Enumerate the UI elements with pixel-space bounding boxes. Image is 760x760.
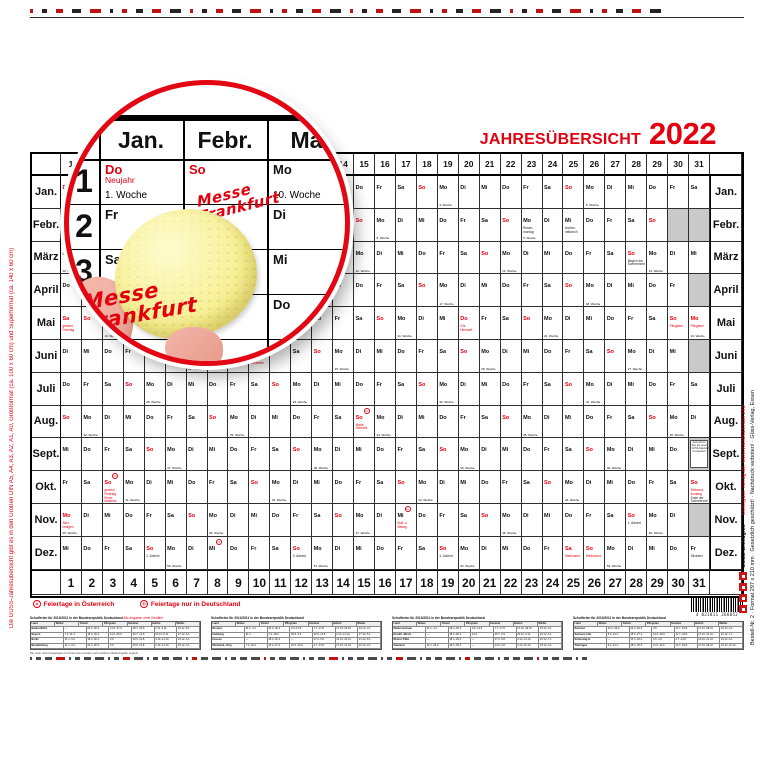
day-cell: Mi bbox=[417, 406, 438, 439]
day-cell: Do bbox=[480, 471, 501, 504]
day-cell: Mo50. Woche bbox=[166, 537, 187, 570]
day-number-footer: 30 bbox=[668, 570, 689, 595]
day-cell: Sa bbox=[438, 340, 459, 373]
day-cell: Fr bbox=[166, 406, 187, 439]
day-cell: Di bbox=[417, 307, 438, 340]
magnifier-top-border bbox=[83, 115, 345, 121]
day-cell: Mo21. Woche bbox=[396, 307, 417, 340]
day-cell: So bbox=[375, 307, 396, 340]
day-cell: Mi bbox=[375, 340, 396, 373]
week-number: 5. Woche bbox=[586, 203, 599, 207]
day-cell: Di bbox=[291, 471, 312, 504]
month-label-right: Juli bbox=[710, 373, 742, 406]
day-cell: Mo39. Woche bbox=[459, 438, 480, 471]
day-number-header: 22 bbox=[501, 154, 522, 176]
day-cell: Mi bbox=[354, 537, 375, 570]
day-cell: Do bbox=[438, 406, 459, 439]
day-number-footer: 2 bbox=[82, 570, 103, 595]
day-cell: Sa bbox=[626, 406, 647, 439]
day-cell: Do bbox=[668, 537, 689, 570]
day-cell: So bbox=[563, 274, 584, 307]
day-cell: Di bbox=[647, 340, 668, 373]
day-cell: Fr bbox=[145, 504, 166, 537]
day-cell: Sa bbox=[187, 406, 208, 439]
month-label-left: Jan. bbox=[32, 176, 61, 209]
day-cell: MoAller-heiligen45. Woche bbox=[61, 504, 82, 537]
week-number: 21. Woche bbox=[397, 334, 411, 338]
day-cell: Di bbox=[333, 438, 354, 471]
week-number: 13. Woche bbox=[502, 269, 516, 273]
right-margin-order-text: Bestell-Nr. 2 · Format 297 x 210 mm · Ge… bbox=[750, 300, 756, 645]
day-cell: Sa bbox=[228, 471, 249, 504]
day-cell: Di bbox=[480, 438, 501, 471]
day-cell: Di bbox=[459, 373, 480, 406]
month-label-right: Dez. bbox=[710, 537, 742, 570]
day-cell: Do bbox=[375, 537, 396, 570]
day-cell: SoDgesetzl.FeiertagErnte-dankfest bbox=[103, 471, 124, 504]
day-cell: Sa bbox=[82, 471, 103, 504]
day-cell: Mi bbox=[668, 340, 689, 373]
day-cell: Di bbox=[249, 406, 270, 439]
day-cell: Do bbox=[647, 176, 668, 209]
day-cell: Fr bbox=[354, 471, 375, 504]
day-cell: SoWeihnacht. bbox=[584, 537, 605, 570]
week-number: 34. Woche bbox=[377, 433, 391, 437]
week-number: 24. Woche bbox=[188, 367, 202, 371]
day-cell: Fr bbox=[522, 274, 543, 307]
day-number-footer: 5 bbox=[145, 570, 166, 595]
month-label-left: März bbox=[32, 242, 61, 275]
barcode: 4 021811 266052 bbox=[688, 598, 746, 617]
day-cell: Do bbox=[584, 209, 605, 242]
day-cell: Sa bbox=[668, 471, 689, 504]
day-cell: Mi bbox=[187, 373, 208, 406]
week-number: 17. Woche bbox=[439, 302, 453, 306]
month-label-left: Mai bbox=[32, 307, 61, 340]
day-cell: Mi bbox=[689, 242, 710, 275]
day-cell: Mi bbox=[647, 438, 668, 471]
day-cell bbox=[689, 504, 710, 537]
week-number: 44. Woche bbox=[565, 498, 579, 502]
week-number: 45. Woche bbox=[63, 531, 77, 535]
day-cell: Fr bbox=[563, 340, 584, 373]
day-cell: Fr bbox=[249, 537, 270, 570]
week-number: 14. Woche bbox=[649, 269, 663, 273]
day-cell: Sa bbox=[605, 504, 626, 537]
day-cell: Sa bbox=[312, 504, 333, 537]
day-cell: Do bbox=[647, 274, 668, 307]
day-cell: SoReforma-tionstagEnde derSommerzeit bbox=[689, 471, 710, 504]
day-cell: Do bbox=[270, 504, 291, 537]
day-cell: Mi bbox=[61, 537, 82, 570]
week-number: 50. Woche bbox=[167, 564, 181, 568]
day-cell: So bbox=[333, 504, 354, 537]
month-label-right: Okt. bbox=[710, 471, 742, 504]
day-cell: Mo22. Woche bbox=[543, 307, 564, 340]
week-number: 42. Woche bbox=[272, 498, 286, 502]
school-holiday-table: Schulferien für 2010/2011 in der Bundesr… bbox=[573, 616, 744, 655]
week-number: 23. Woche bbox=[691, 334, 705, 338]
left-margin-text: Die GÜSS-Jahresübersicht gibt es in den … bbox=[9, 150, 15, 628]
day-cell: Mo12. Woche bbox=[354, 242, 375, 275]
day-cell: Mo18. Woche bbox=[584, 274, 605, 307]
day-cell: So bbox=[417, 274, 438, 307]
day-number-header: 28 bbox=[626, 154, 647, 176]
day-cell: Mi bbox=[438, 307, 459, 340]
day-cell: So bbox=[145, 438, 166, 471]
holiday-region-marker: A bbox=[364, 408, 370, 414]
day-cell: Mo28. Woche bbox=[145, 373, 166, 406]
day-cell: Mo4. Woche bbox=[438, 176, 459, 209]
calendar-sheet: JAHRESÜBERSICHT 2022 1234567891011121314… bbox=[0, 0, 760, 760]
day-cell: MiDBuß- u.Bettag bbox=[396, 504, 417, 537]
day-cell: Mo41. Woche bbox=[124, 471, 145, 504]
day-cell: Mo33. Woche bbox=[228, 406, 249, 439]
day-cell: Sa bbox=[605, 242, 626, 275]
day-cell: Di bbox=[584, 471, 605, 504]
week-number: 38. Woche bbox=[314, 466, 328, 470]
day-number-footer: 17 bbox=[396, 570, 417, 595]
day-cell: So bbox=[208, 406, 229, 439]
day-cell: Do bbox=[647, 373, 668, 406]
day-cell: So bbox=[417, 176, 438, 209]
day-cell: Sa bbox=[522, 471, 543, 504]
day-cell: Di bbox=[396, 406, 417, 439]
day-cell bbox=[689, 340, 710, 373]
month-label-left: Aug. bbox=[32, 406, 61, 439]
day-cell: Do bbox=[82, 438, 103, 471]
day-cell: So bbox=[438, 438, 459, 471]
week-number: 30. Woche bbox=[439, 400, 453, 404]
day-cell: Di bbox=[668, 504, 689, 537]
day-number-footer: 15 bbox=[354, 570, 375, 595]
day-cell: So bbox=[124, 373, 145, 406]
day-cell: Fr bbox=[605, 406, 626, 439]
day-number-footer: 23 bbox=[522, 570, 543, 595]
day-cell: Do bbox=[417, 242, 438, 275]
day-cell: So1. Advent bbox=[626, 504, 647, 537]
day-cell: Sa bbox=[166, 504, 187, 537]
day-cell: Sa bbox=[626, 209, 647, 242]
day-cell: Mo53. Woche bbox=[605, 537, 626, 570]
day-number-header: 24 bbox=[543, 154, 564, 176]
day-cell: Do bbox=[626, 471, 647, 504]
day-cell: So bbox=[480, 242, 501, 275]
day-cell: MoRosen-montag9. Woche bbox=[522, 209, 543, 242]
day-cell: Do bbox=[417, 504, 438, 537]
day-cell: Jetzt wird esZeit, die neuenGÜSS-Kalende… bbox=[689, 438, 710, 471]
day-cell: Fr bbox=[375, 373, 396, 406]
week-number: 28. Woche bbox=[146, 400, 160, 404]
day-cell: So bbox=[396, 471, 417, 504]
day-cell: Sa bbox=[543, 373, 564, 406]
school-holiday-table: Schulferien für 2010/2011 in der Bundesr… bbox=[392, 616, 563, 655]
day-cell: Sa bbox=[647, 307, 668, 340]
day-number-header: 26 bbox=[584, 154, 605, 176]
magnifier-month-header: Mär bbox=[267, 123, 345, 157]
title-year: 2022 bbox=[649, 116, 716, 152]
day-cell: Sa bbox=[270, 438, 291, 471]
legend-symbol: A bbox=[33, 600, 41, 608]
magnifier-content: Jan.Febr.Mär1DoNeujahr1. WocheSoMo10. Wo… bbox=[69, 85, 345, 361]
day-cell: Di bbox=[187, 438, 208, 471]
magnifier-day-cell: Do bbox=[267, 294, 345, 339]
day-cell: MiAscher-mittwoch bbox=[563, 209, 584, 242]
week-number: 32. Woche bbox=[83, 433, 97, 437]
month-label-right: Nov. bbox=[710, 504, 742, 537]
day-cell: Fr bbox=[543, 537, 564, 570]
day-cell: Do bbox=[124, 504, 145, 537]
day-cell: Di bbox=[626, 537, 647, 570]
day-cell: Fr bbox=[480, 307, 501, 340]
day-number-header: 20 bbox=[459, 154, 480, 176]
day-cell: Fr bbox=[82, 373, 103, 406]
day-cell: Mi bbox=[354, 438, 375, 471]
day-cell: Do bbox=[563, 504, 584, 537]
week-number: 31. Woche bbox=[586, 400, 600, 404]
day-cell: So bbox=[647, 406, 668, 439]
day-number-header: 15 bbox=[354, 154, 375, 176]
day-cell: Sa bbox=[689, 373, 710, 406]
day-number-header: 27 bbox=[605, 154, 626, 176]
table-footnote: Die noch nicht festgelegten Ferientermin… bbox=[30, 651, 201, 655]
week-number: 48. Woche bbox=[502, 531, 516, 535]
day-cell: So bbox=[417, 373, 438, 406]
day-cell: SoAMariäHimmelf. bbox=[354, 406, 375, 439]
day-cell: Mo34. Woche bbox=[375, 406, 396, 439]
day-cell: Mo36. Woche bbox=[668, 406, 689, 439]
day-cell: Mi bbox=[312, 471, 333, 504]
day-cell: Mo30. Woche bbox=[438, 373, 459, 406]
day-cell: So bbox=[647, 209, 668, 242]
day-cell: Fr bbox=[312, 406, 333, 439]
week-number: 8. Woche bbox=[377, 236, 390, 240]
day-cell: MiA bbox=[208, 537, 229, 570]
day-cell: So bbox=[584, 438, 605, 471]
day-cell: Mo35. Woche bbox=[522, 406, 543, 439]
day-cell: Di bbox=[166, 373, 187, 406]
day-cell: Fr bbox=[438, 504, 459, 537]
day-number-footer: 12 bbox=[291, 570, 312, 595]
month-label-left: Dez. bbox=[32, 537, 61, 570]
day-cell: Mo43. Woche bbox=[417, 471, 438, 504]
day-cell: Di bbox=[459, 176, 480, 209]
day-number-footer: 14 bbox=[333, 570, 354, 595]
day-cell: Di bbox=[605, 274, 626, 307]
day-cell: Mo32. Woche bbox=[82, 406, 103, 439]
day-cell: Fr bbox=[228, 373, 249, 406]
month-label-right: Sept. bbox=[710, 438, 742, 471]
day-cell: Di bbox=[605, 176, 626, 209]
day-cell: Sa bbox=[124, 438, 145, 471]
day-cell: Fr bbox=[668, 274, 689, 307]
week-number: 47. Woche bbox=[356, 531, 370, 535]
day-number-footer: 19 bbox=[438, 570, 459, 595]
day-cell: Mi bbox=[270, 406, 291, 439]
day-cell: Sa bbox=[396, 274, 417, 307]
day-cell: Sa bbox=[396, 373, 417, 406]
day-number-footer: 20 bbox=[459, 570, 480, 595]
day-cell: Mi bbox=[522, 340, 543, 373]
school-holiday-tables: Schulferien für 2010/2011 in der Bundesr… bbox=[30, 616, 744, 655]
day-cell: Di bbox=[82, 504, 103, 537]
day-cell: Do bbox=[396, 340, 417, 373]
day-cell: Mi bbox=[543, 504, 564, 537]
magnifier-day-number: 1 bbox=[69, 163, 99, 200]
day-number-header: 19 bbox=[438, 154, 459, 176]
day-cell: Mi bbox=[501, 438, 522, 471]
day-number-footer: 18 bbox=[417, 570, 438, 595]
day-cell: Sa bbox=[333, 406, 354, 439]
day-cell: Do bbox=[501, 176, 522, 209]
day-cell: Do bbox=[291, 406, 312, 439]
week-number: 49. Woche bbox=[649, 531, 663, 535]
day-number-header: 30 bbox=[668, 154, 689, 176]
day-cell: Fr bbox=[417, 340, 438, 373]
logo-square bbox=[739, 605, 747, 613]
day-cell: Mo49. Woche bbox=[647, 504, 668, 537]
day-cell: Fr bbox=[249, 438, 270, 471]
week-number: 4. Woche bbox=[439, 203, 452, 207]
day-cell: So bbox=[543, 471, 564, 504]
day-cell: Fr bbox=[61, 471, 82, 504]
fingertip bbox=[165, 327, 223, 361]
day-cell: So bbox=[270, 373, 291, 406]
day-cell: Do bbox=[501, 373, 522, 406]
day-cell: Mi bbox=[417, 209, 438, 242]
week-number: 18. Woche bbox=[586, 302, 600, 306]
week-number: 29. Woche bbox=[293, 400, 307, 404]
day-cell: Di bbox=[668, 242, 689, 275]
day-cell: Fr bbox=[626, 307, 647, 340]
day-cell: So bbox=[187, 504, 208, 537]
day-cell: Mi bbox=[396, 242, 417, 275]
day-cell bbox=[689, 274, 710, 307]
day-cell: Di bbox=[626, 438, 647, 471]
day-cell: Di bbox=[689, 406, 710, 439]
day-cell: Mi bbox=[605, 471, 626, 504]
day-cell: Di bbox=[563, 307, 584, 340]
day-cell: Mi bbox=[208, 438, 229, 471]
day-cell: FrSilvester bbox=[689, 537, 710, 570]
day-cell: Mi bbox=[480, 176, 501, 209]
day-cell: Fr bbox=[291, 504, 312, 537]
week-number: 43. Woche bbox=[418, 498, 432, 502]
day-cell: Di bbox=[480, 537, 501, 570]
week-number: 9. Woche bbox=[523, 236, 536, 240]
day-cell: Fr bbox=[375, 274, 396, 307]
day-cell: Mo47. Woche bbox=[354, 504, 375, 537]
day-cell: Mi bbox=[61, 438, 82, 471]
day-cell: Fr bbox=[668, 373, 689, 406]
day-cell: Sa bbox=[459, 504, 480, 537]
logo-square bbox=[739, 594, 747, 602]
day-cell: Sa bbox=[396, 176, 417, 209]
month-label-right: Mai bbox=[710, 307, 742, 340]
day-cell: Sa bbox=[459, 242, 480, 275]
day-cell: Do bbox=[605, 307, 626, 340]
day-cell: Do bbox=[354, 274, 375, 307]
day-cell: Sa bbox=[375, 471, 396, 504]
day-cell: Mo48. Woche bbox=[501, 504, 522, 537]
day-cell: SoPfingsten bbox=[668, 307, 689, 340]
day-cell: Di bbox=[312, 373, 333, 406]
day-cell: Do bbox=[61, 373, 82, 406]
day-cell: Di bbox=[333, 537, 354, 570]
day-cell: Di bbox=[103, 406, 124, 439]
day-cell: Do bbox=[584, 406, 605, 439]
month-label-right: Aug. bbox=[710, 406, 742, 439]
day-number-footer: 21 bbox=[480, 570, 501, 595]
day-number-footer: 26 bbox=[584, 570, 605, 595]
day-number-header: 16 bbox=[375, 154, 396, 176]
day-cell: Di bbox=[522, 504, 543, 537]
day-cell: Do bbox=[543, 340, 564, 373]
day-number-footer: 1 bbox=[61, 570, 82, 595]
day-number-footer: 9 bbox=[228, 570, 249, 595]
day-number-footer: 3 bbox=[103, 570, 124, 595]
day-number-header: 17 bbox=[396, 154, 417, 176]
day-number-header: 25 bbox=[563, 154, 584, 176]
day-cell: Fr bbox=[375, 176, 396, 209]
day-cell: Do bbox=[354, 373, 375, 406]
day-number-header: 29 bbox=[647, 154, 668, 176]
day-cell: Sa bbox=[480, 209, 501, 242]
day-cell: So bbox=[501, 209, 522, 242]
day-cell: Sa bbox=[417, 537, 438, 570]
day-number-footer: 8 bbox=[208, 570, 229, 595]
magnifier-month-header: Febr. bbox=[183, 123, 267, 157]
day-cell: So4. Advent bbox=[438, 537, 459, 570]
day-cell: Sa bbox=[584, 340, 605, 373]
day-cell: Fr bbox=[438, 242, 459, 275]
day-number-footer: 16 bbox=[375, 570, 396, 595]
day-cell: Mo14. Woche bbox=[647, 242, 668, 275]
day-cell: So bbox=[291, 438, 312, 471]
day-cell: Mi bbox=[249, 504, 270, 537]
magnifier-overlay: Jan.Febr.Mär1DoNeujahr1. WocheSoMo10. Wo… bbox=[64, 80, 350, 366]
week-number: 52. Woche bbox=[460, 564, 474, 568]
day-cell: Di bbox=[543, 406, 564, 439]
day-cell: Di bbox=[522, 242, 543, 275]
logo-square bbox=[739, 583, 747, 591]
month-label-left: Febr. bbox=[32, 209, 61, 242]
day-cell: So bbox=[605, 340, 626, 373]
day-number-footer: 31 bbox=[689, 570, 710, 595]
week-number: 12. Woche bbox=[356, 269, 370, 273]
day-number-footer: 11 bbox=[270, 570, 291, 595]
day-cell: Di bbox=[438, 471, 459, 504]
day-cell: Do bbox=[563, 242, 584, 275]
day-cell: Mi bbox=[543, 242, 564, 275]
day-number-footer: 27 bbox=[605, 570, 626, 595]
day-number-footer: 4 bbox=[124, 570, 145, 595]
holiday-region-marker: A bbox=[216, 539, 222, 545]
day-number-footer: 24 bbox=[543, 570, 564, 595]
day-cell: Mo37. Woche bbox=[166, 438, 187, 471]
day-cell: Mo26. Woche bbox=[480, 340, 501, 373]
day-cell: Sa bbox=[501, 307, 522, 340]
week-number: 39. Woche bbox=[460, 466, 474, 470]
day-cell: Mi bbox=[626, 274, 647, 307]
title-text: JAHRESÜBERSICHT bbox=[480, 131, 641, 149]
day-cell: Do bbox=[501, 274, 522, 307]
week-number: 51. Woche bbox=[314, 564, 328, 568]
week-number: 40. Woche bbox=[607, 466, 621, 470]
day-cell: SaWeihnacht. bbox=[563, 537, 584, 570]
day-number-footer: 7 bbox=[187, 570, 208, 595]
week-number: 36. Woche bbox=[670, 433, 684, 437]
